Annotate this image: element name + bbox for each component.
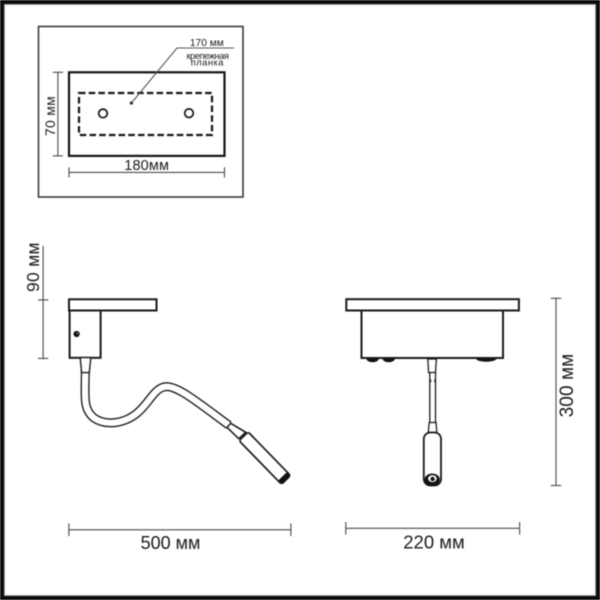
svg-text:220 мм: 220 мм xyxy=(403,532,464,553)
svg-text:300 мм: 300 мм xyxy=(557,354,578,418)
svg-text:180мм: 180мм xyxy=(124,158,169,174)
svg-text:90 мм: 90 мм xyxy=(23,242,43,292)
svg-text:планка: планка xyxy=(191,57,225,67)
svg-text:70 мм: 70 мм xyxy=(42,96,58,136)
svg-text:170 мм: 170 мм xyxy=(190,38,224,49)
svg-text:500 мм: 500 мм xyxy=(141,533,201,553)
